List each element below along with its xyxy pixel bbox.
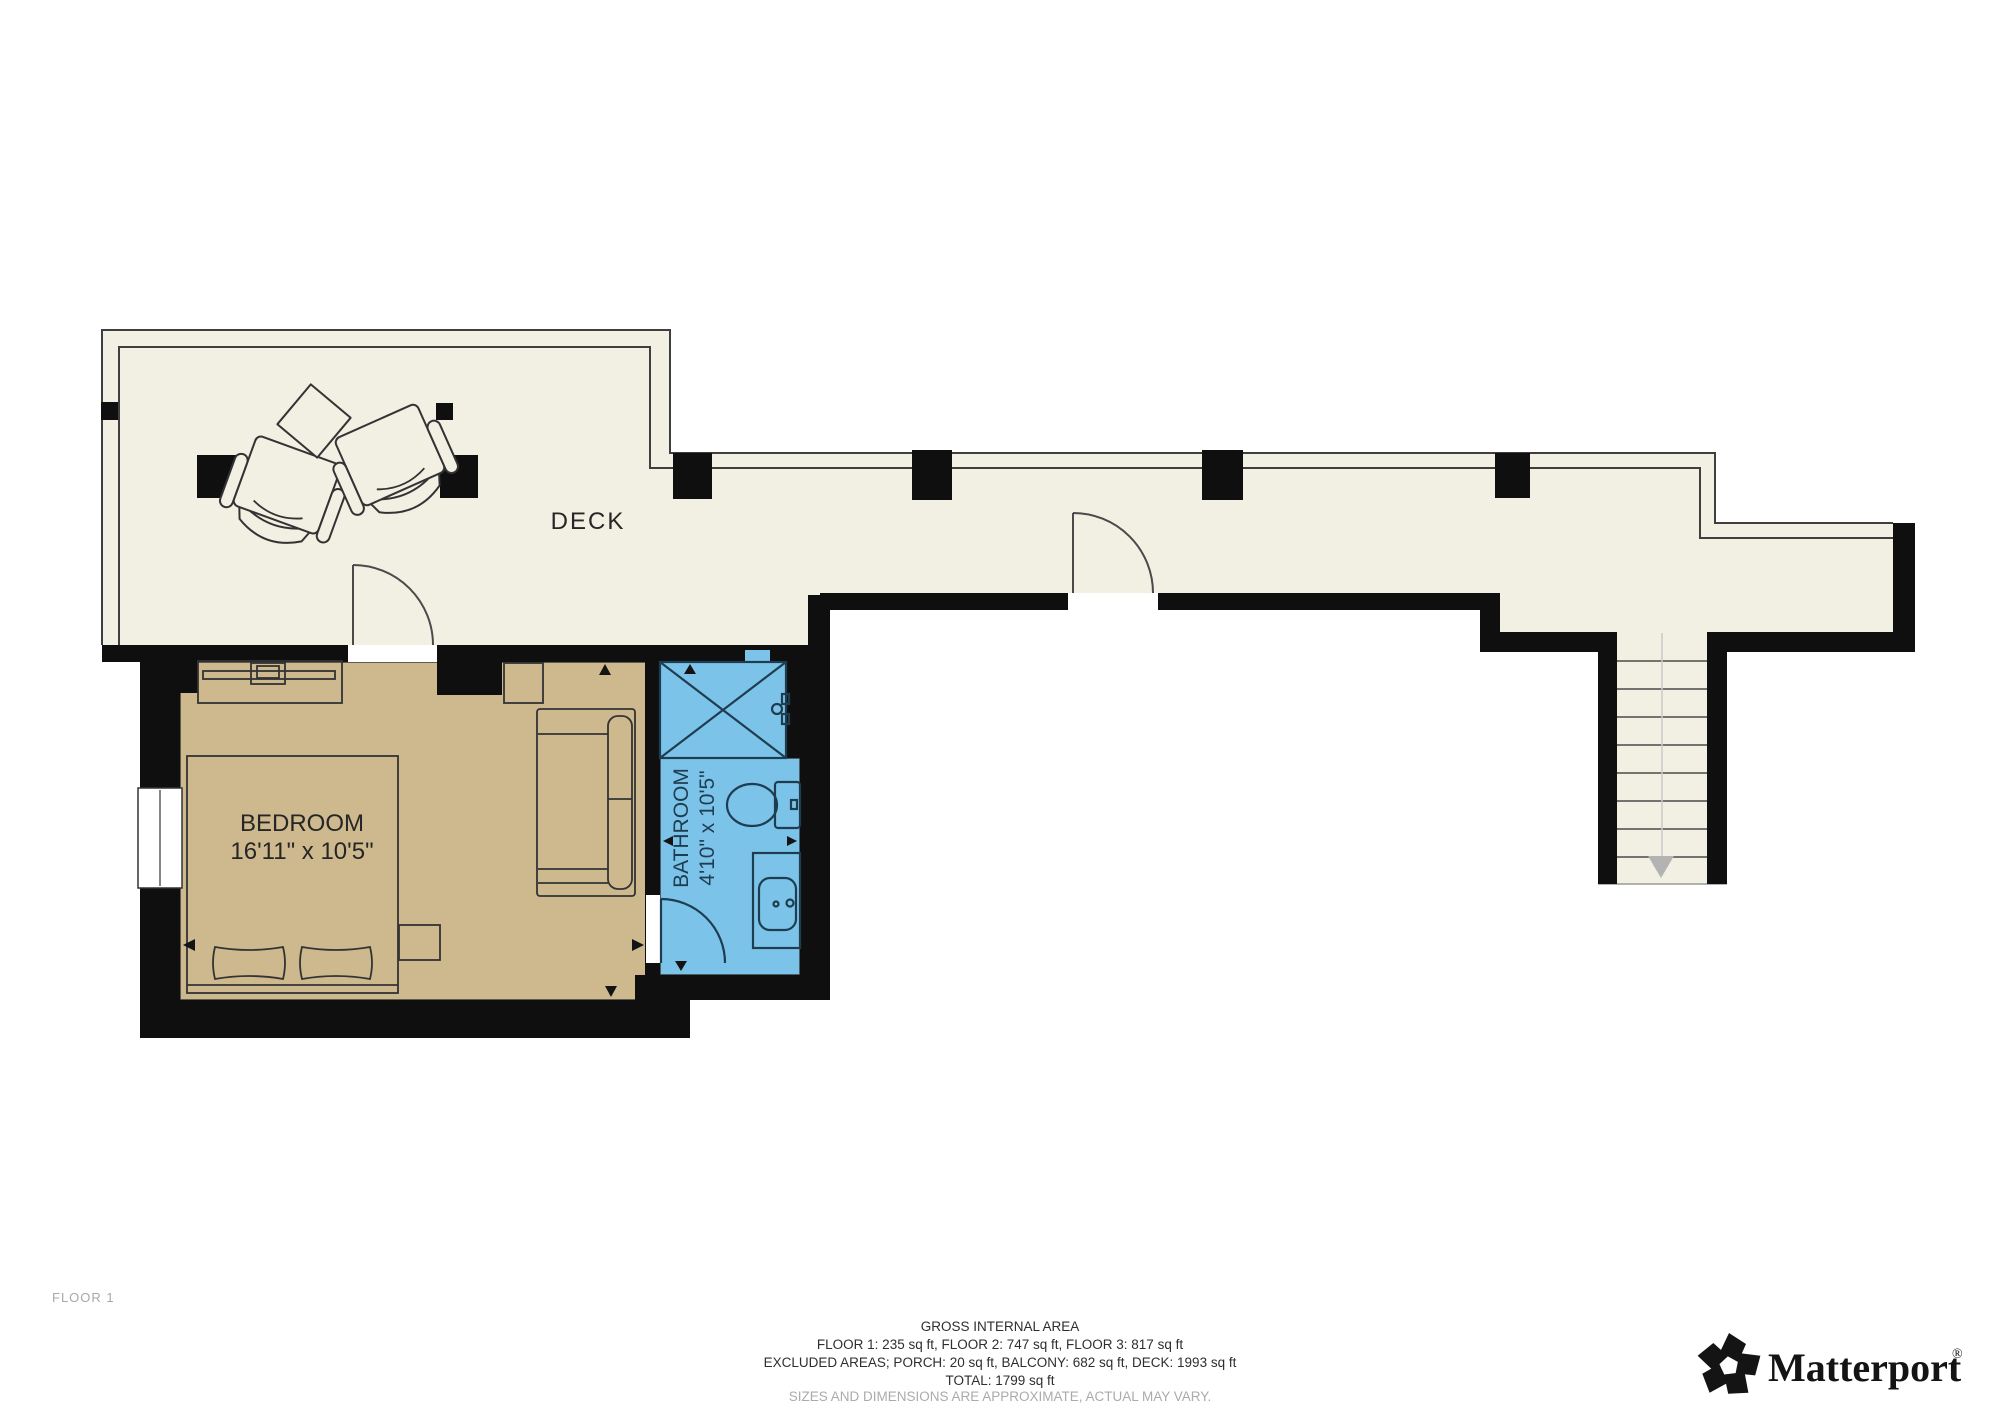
- post: [1202, 450, 1243, 500]
- post-small: [436, 403, 453, 420]
- bedroom-label: BEDROOM: [240, 810, 364, 837]
- footer-excluded: EXCLUDED AREAS; PORCH: 20 sq ft, BALCONY…: [764, 1355, 1237, 1370]
- wall-segment: [1500, 632, 1598, 652]
- registered-trademark-icon: ®: [1952, 1347, 1963, 1362]
- bedroom-dimensions: 16'11" x 10'5": [230, 838, 373, 865]
- wall-segment: [102, 645, 348, 662]
- wall-segment: [140, 1000, 690, 1038]
- wall-segment: [1727, 632, 1915, 652]
- post: [1495, 453, 1530, 498]
- wall-segment: [437, 662, 502, 695]
- floor-plan: DECK BEDROOM 16'11" x 10'5" BATHROOM 4'1…: [0, 0, 2000, 1414]
- wall-segment: [786, 662, 800, 758]
- matterport-wordmark: Matterport: [1768, 1345, 1962, 1390]
- matterport-icon: [1695, 1333, 1766, 1403]
- wall-segment: [1893, 523, 1915, 652]
- wall-segment: [820, 593, 1068, 610]
- wall-segment: [1158, 593, 1480, 610]
- footer-total: TOTAL: 1799 sq ft: [945, 1373, 1054, 1388]
- post-small: [101, 402, 118, 420]
- footer-disclaimer: SIZES AND DIMENSIONS ARE APPROXIMATE, AC…: [789, 1389, 1212, 1404]
- matterport-logo: Matterport ®: [1695, 1333, 1963, 1403]
- wall-segment: [1707, 632, 1727, 884]
- footer-floors: FLOOR 1: 235 sq ft, FLOOR 2: 747 sq ft, …: [817, 1337, 1183, 1352]
- bathroom-dimensions: 4'10" x 10'5": [696, 770, 719, 885]
- floor-plan-page: DECK BEDROOM 16'11" x 10'5" BATHROOM 4'1…: [0, 0, 2000, 1414]
- wall-segment: [635, 975, 830, 1000]
- bathroom-label: BATHROOM: [670, 768, 693, 888]
- wall-segment: [1598, 632, 1617, 884]
- wall-segment: [437, 645, 830, 662]
- floor-label: FLOOR 1: [52, 1290, 115, 1305]
- shower-niche: [745, 650, 770, 662]
- post: [673, 453, 712, 499]
- footer: GROSS INTERNAL AREA FLOOR 1: 235 sq ft, …: [764, 1319, 1237, 1404]
- wall-segment: [800, 645, 830, 1000]
- bedroom-window: [138, 788, 182, 888]
- wall-segment: [1480, 593, 1500, 652]
- deck-label: DECK: [551, 508, 626, 535]
- post: [912, 450, 952, 500]
- footer-heading: GROSS INTERNAL AREA: [921, 1319, 1080, 1334]
